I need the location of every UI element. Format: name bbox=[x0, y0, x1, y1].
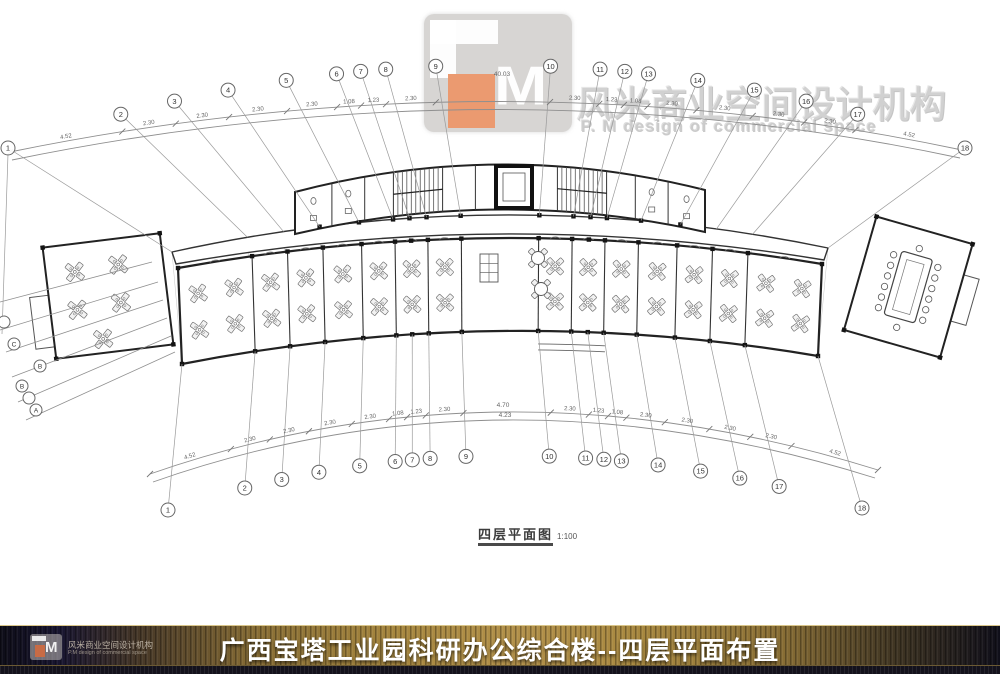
grid-bubble: 6 bbox=[388, 455, 402, 469]
svg-text:5: 5 bbox=[284, 76, 288, 85]
svg-text:18: 18 bbox=[961, 144, 969, 153]
svg-text:2.30: 2.30 bbox=[772, 111, 785, 118]
grid-bubble: 17 bbox=[851, 107, 865, 121]
svg-text:1: 1 bbox=[166, 506, 170, 515]
svg-text:5: 5 bbox=[358, 461, 362, 470]
drawing-caption: 四层平面图1:100 bbox=[478, 524, 577, 544]
svg-text:11: 11 bbox=[596, 65, 604, 74]
svg-text:4.23: 4.23 bbox=[499, 412, 512, 419]
svg-text:C: C bbox=[12, 341, 17, 348]
grid-bubble: 3 bbox=[275, 472, 289, 486]
grid-bubble: 17 bbox=[772, 479, 786, 493]
grid-bubble: 13 bbox=[614, 454, 628, 468]
grid-bubble: A bbox=[30, 404, 42, 416]
grid-bubble bbox=[0, 316, 10, 328]
svg-text:2.30: 2.30 bbox=[364, 414, 377, 422]
svg-text:1: 1 bbox=[6, 144, 10, 153]
svg-text:1.08: 1.08 bbox=[343, 99, 356, 106]
svg-text:6: 6 bbox=[393, 457, 397, 466]
grid-bubble: 15 bbox=[694, 464, 708, 478]
svg-text:A: A bbox=[34, 407, 39, 414]
svg-text:1.08: 1.08 bbox=[611, 409, 624, 416]
svg-text:2: 2 bbox=[243, 484, 247, 493]
svg-text:3: 3 bbox=[172, 97, 176, 106]
svg-text:9: 9 bbox=[434, 62, 438, 71]
svg-text:16: 16 bbox=[736, 474, 744, 483]
svg-text:2.30: 2.30 bbox=[681, 418, 694, 426]
grid-bubble: 14 bbox=[691, 73, 705, 87]
grid-bubble: 10 bbox=[544, 59, 558, 73]
dimension-grid-bottom: 4.522.302.302.302.301.081.232.302.301.23… bbox=[147, 331, 881, 517]
grid-bubble: 2 bbox=[114, 107, 128, 121]
svg-text:4.70: 4.70 bbox=[497, 402, 510, 409]
svg-text:2.30: 2.30 bbox=[719, 105, 732, 112]
svg-text:2.30: 2.30 bbox=[824, 118, 837, 126]
svg-text:2.30: 2.30 bbox=[569, 96, 582, 102]
svg-text:4: 4 bbox=[226, 86, 230, 95]
grid-bubble: 5 bbox=[353, 459, 367, 473]
grid-bubble: 5 bbox=[279, 73, 293, 87]
svg-text:2.30: 2.30 bbox=[306, 101, 319, 108]
svg-text:2.30: 2.30 bbox=[666, 101, 679, 108]
svg-text:12: 12 bbox=[600, 455, 608, 464]
grid-bubble: 6 bbox=[330, 67, 344, 81]
svg-text:8: 8 bbox=[428, 454, 432, 463]
svg-text:8: 8 bbox=[384, 65, 388, 74]
svg-text:17: 17 bbox=[854, 110, 862, 119]
svg-text:15: 15 bbox=[750, 86, 758, 95]
svg-text:18: 18 bbox=[858, 504, 866, 513]
svg-text:2.30: 2.30 bbox=[143, 120, 156, 128]
svg-text:12: 12 bbox=[621, 67, 629, 76]
svg-text:1.23: 1.23 bbox=[592, 408, 605, 415]
caption-scale: 1:100 bbox=[557, 532, 577, 541]
grid-bubble: 12 bbox=[618, 64, 632, 78]
grid-bubble: 11 bbox=[593, 62, 607, 76]
svg-text:1.23: 1.23 bbox=[368, 98, 381, 105]
grid-bubble: 2 bbox=[238, 481, 252, 495]
grid-bubble: 12 bbox=[597, 452, 611, 466]
grid-bubble: 18 bbox=[958, 141, 972, 155]
svg-text:2: 2 bbox=[119, 110, 123, 119]
svg-text:11: 11 bbox=[582, 454, 590, 463]
svg-text:B: B bbox=[38, 363, 42, 370]
svg-text:7: 7 bbox=[410, 455, 414, 464]
grid-bubble: 3 bbox=[167, 94, 181, 108]
grid-bubble: 7 bbox=[405, 453, 419, 467]
grid-bubble: 15 bbox=[747, 83, 761, 97]
svg-text:10: 10 bbox=[545, 452, 553, 461]
grid-bubble: 1 bbox=[1, 141, 15, 155]
banner-band: M 风米商业空间设计机构 P.M design of commercial sp… bbox=[0, 625, 1000, 667]
grid-bubble: 16 bbox=[799, 94, 813, 108]
svg-text:15: 15 bbox=[696, 467, 704, 476]
grid-bubble bbox=[23, 392, 35, 404]
svg-text:2.30: 2.30 bbox=[405, 96, 418, 102]
svg-text:10: 10 bbox=[546, 62, 554, 71]
grid-bubble: 16 bbox=[733, 471, 747, 485]
svg-text:1.23: 1.23 bbox=[410, 409, 423, 416]
svg-text:3: 3 bbox=[280, 475, 284, 484]
svg-text:2.30: 2.30 bbox=[196, 112, 209, 119]
title-banner: M 风米商业空间设计机构 P.M design of commercial sp… bbox=[0, 625, 1000, 674]
caption-title: 四层平面图 bbox=[478, 527, 553, 546]
grid-bubble: 9 bbox=[459, 449, 473, 463]
svg-text:2.30: 2.30 bbox=[640, 412, 653, 419]
grid-bubble: 14 bbox=[651, 458, 665, 472]
elevator-shaft bbox=[496, 166, 532, 208]
grid-bubble: 9 bbox=[429, 59, 443, 73]
svg-text:2.30: 2.30 bbox=[564, 406, 577, 413]
svg-text:2.30: 2.30 bbox=[439, 407, 452, 414]
grid-bubble: 8 bbox=[423, 451, 437, 465]
svg-text:17: 17 bbox=[775, 482, 783, 491]
grid-bubble: B bbox=[16, 380, 28, 392]
cabinet bbox=[480, 254, 498, 282]
svg-text:1.08: 1.08 bbox=[392, 410, 405, 417]
grid-bubble: 13 bbox=[642, 67, 656, 81]
svg-text:16: 16 bbox=[802, 97, 810, 106]
svg-text:14: 14 bbox=[654, 461, 662, 470]
svg-text:B: B bbox=[20, 383, 24, 390]
svg-text:1.08: 1.08 bbox=[630, 98, 643, 105]
svg-text:2.30: 2.30 bbox=[252, 106, 265, 113]
svg-text:7: 7 bbox=[359, 67, 363, 76]
terrace bbox=[538, 344, 605, 352]
grid-bubble: 4 bbox=[221, 83, 235, 97]
svg-text:14: 14 bbox=[694, 76, 702, 85]
grid-bubble: 8 bbox=[379, 62, 393, 76]
svg-text:13: 13 bbox=[644, 69, 652, 78]
plan-sheet: M 风米商业空间设计机构 P. M design of commercial s… bbox=[0, 0, 1000, 625]
svg-text:13: 13 bbox=[617, 456, 625, 465]
grid-bubble: 10 bbox=[542, 449, 556, 463]
svg-text:1.23: 1.23 bbox=[606, 97, 619, 104]
grid-bubble: 4 bbox=[312, 465, 326, 479]
grid-bubble: 18 bbox=[855, 501, 869, 515]
banner-bottom-strip bbox=[0, 665, 1000, 674]
svg-text:40.03: 40.03 bbox=[494, 71, 511, 78]
svg-text:9: 9 bbox=[464, 452, 468, 461]
grid-bubble: 7 bbox=[354, 64, 368, 78]
svg-text:4.52: 4.52 bbox=[184, 452, 198, 461]
right-wing bbox=[841, 214, 988, 364]
grid-bubble: 11 bbox=[579, 451, 593, 465]
banner-title: 广西宝塔工业园科研办公综合楼--四层平面布置 bbox=[0, 631, 1000, 667]
grid-bubble: C bbox=[8, 338, 20, 350]
grid-bubble: 1 bbox=[161, 503, 175, 517]
svg-text:4: 4 bbox=[317, 468, 321, 477]
svg-text:6: 6 bbox=[334, 69, 338, 78]
grid-bubble: B bbox=[34, 360, 46, 372]
